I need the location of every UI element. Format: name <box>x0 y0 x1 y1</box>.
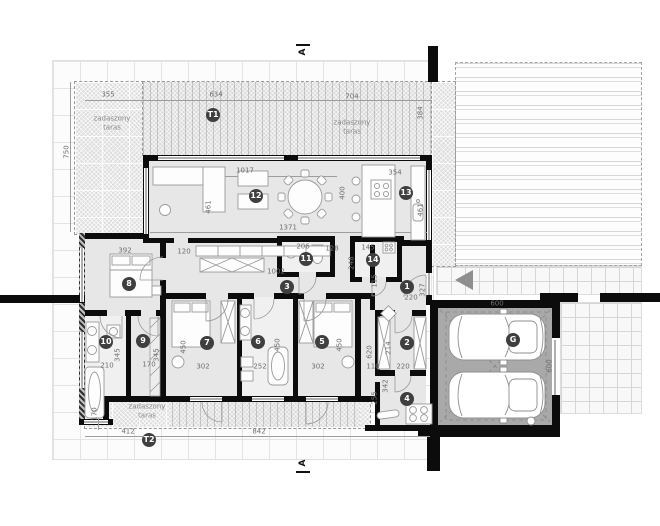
section-marker-line <box>296 471 310 473</box>
dimension-206: 206 <box>296 244 309 251</box>
room-badge-9: 9 <box>136 334 150 348</box>
room-badge-14: 14 <box>366 253 380 267</box>
dimension-400: 400 <box>340 186 347 199</box>
dimension-120: 120 <box>177 249 190 256</box>
dimension-450: 450 <box>181 340 188 353</box>
dimension-220: 220 <box>404 295 417 302</box>
room-badge-G: G <box>506 333 520 347</box>
dimension-255: 255 <box>372 391 379 404</box>
dimension-115: 115 <box>372 274 379 287</box>
dimension-1371: 1371 <box>279 225 297 232</box>
dimension-302: 302 <box>196 364 209 371</box>
dimension-355: 355 <box>101 92 114 99</box>
dimension-220: 220 <box>396 364 409 371</box>
terrace-label: zadaszony taras <box>326 119 378 138</box>
dimension-842: 842 <box>252 429 265 436</box>
section-marker-line <box>296 44 310 46</box>
dimension-110: 110 <box>366 364 379 371</box>
dimension-1002: 1002 <box>267 269 285 276</box>
room-badge-T1: T1 <box>206 108 220 122</box>
dimension-704: 704 <box>345 94 358 101</box>
room-badge-4: 4 <box>400 392 414 406</box>
dimension-461: 461 <box>206 200 213 213</box>
dimension-170: 170 <box>92 407 99 420</box>
dimension-392: 392 <box>118 248 131 255</box>
dimension-634: 634 <box>209 92 222 99</box>
dimension-1017: 1017 <box>236 168 254 175</box>
dimension-342: 342 <box>383 379 390 392</box>
room-badge-12: 12 <box>249 189 263 203</box>
room-badge-1: 1 <box>400 280 414 294</box>
dimension-600: 600 <box>490 301 503 308</box>
floor-plan-canvas: 3556347047503841017461137135440046139212… <box>0 0 660 526</box>
room-badge-7: 7 <box>200 336 214 350</box>
dimension-345: 345 <box>154 348 161 361</box>
dimension-210: 210 <box>100 363 113 370</box>
dimension-252: 252 <box>253 364 266 371</box>
dimension-461: 461 <box>418 203 425 216</box>
dimension-450: 450 <box>275 338 282 351</box>
dimension-302: 302 <box>311 364 324 371</box>
labels-layer: 3556347047503841017461137135440046139212… <box>0 0 660 526</box>
dimension-450: 450 <box>337 338 344 351</box>
room-badge-10: 10 <box>99 335 113 349</box>
room-badge-2: 2 <box>400 336 414 350</box>
room-badge-8: 8 <box>122 277 136 291</box>
dimension-214: 214 <box>386 341 393 354</box>
section-marker-label: A <box>298 49 308 56</box>
dimension-327: 327 <box>420 283 427 296</box>
dimension-345: 345 <box>115 348 122 361</box>
dimension-600: 600 <box>547 359 554 372</box>
terrace-label: zadaszony taras <box>88 115 136 134</box>
room-badge-11: 11 <box>299 252 313 266</box>
room-badge-6: 6 <box>251 335 265 349</box>
room-badge-3: 3 <box>280 280 294 294</box>
dimension-620: 620 <box>367 345 374 358</box>
dimension-128: 128 <box>325 246 338 253</box>
dimension-170: 170 <box>142 362 155 369</box>
dimension-384: 384 <box>418 106 425 119</box>
dimension-248: 248 <box>349 256 356 269</box>
room-badge-T2: T2 <box>142 433 156 447</box>
dimension-750: 750 <box>64 145 71 158</box>
room-badge-13: 13 <box>399 186 413 200</box>
dimension-354: 354 <box>388 170 401 177</box>
dimension-412: 412 <box>121 429 134 436</box>
terrace-label: zadaszony taras <box>123 403 171 422</box>
section-marker-label: A <box>298 460 308 467</box>
dimension-145: 145 <box>361 245 374 252</box>
room-badge-5: 5 <box>315 335 329 349</box>
